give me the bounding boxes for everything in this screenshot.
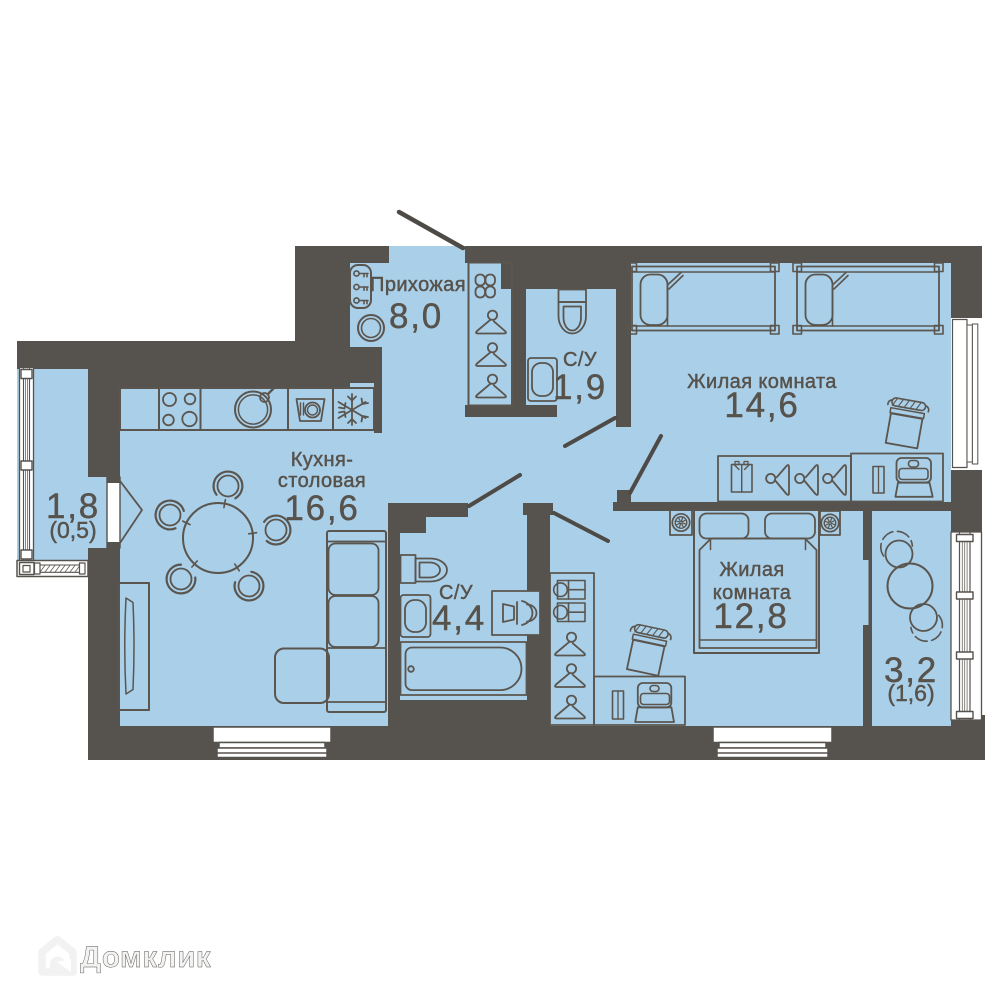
svg-text:16,6: 16,6	[284, 489, 359, 528]
svg-text:(0,5): (0,5)	[49, 517, 96, 543]
svg-text:Кухня-: Кухня-	[291, 449, 354, 471]
svg-text:Жилая: Жилая	[719, 559, 784, 581]
svg-text:12,8: 12,8	[713, 597, 788, 636]
svg-text:8,0: 8,0	[389, 297, 443, 336]
svg-text:Прихожая: Прихожая	[370, 274, 466, 296]
svg-text:Домклик: Домклик	[80, 941, 211, 974]
svg-text:(1,6): (1,6)	[887, 680, 934, 706]
svg-text:4,4: 4,4	[432, 599, 486, 638]
svg-text:1,9: 1,9	[553, 368, 607, 407]
svg-text:14,6: 14,6	[724, 386, 799, 425]
